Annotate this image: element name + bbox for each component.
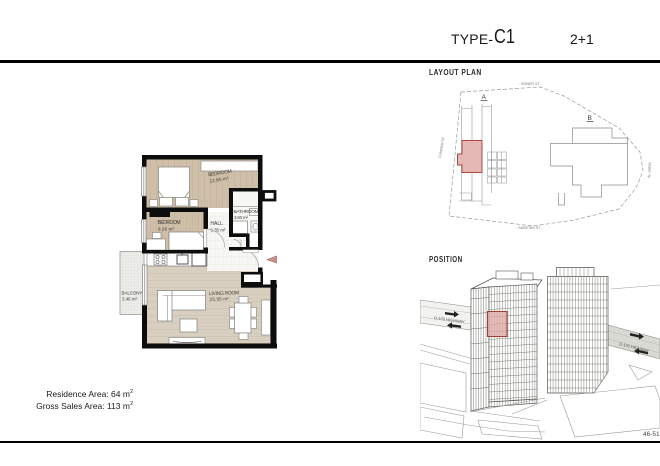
svg-text:FUNDEM ST: FUNDEM ST [438,136,446,158]
svg-text:HALL: HALL [210,221,223,227]
svg-text:A: A [482,94,487,101]
svg-text:- SARETAS ST -: - SARETAS ST - [516,226,543,230]
svg-text:BEDROOM: BEDROOM [158,220,181,226]
svg-text:3.60 m²: 3.60 m² [234,215,249,220]
svg-text:9.26 m²: 9.26 m² [158,227,175,232]
svg-text:B: B [588,115,592,122]
svg-text:- BONER ST -: - BONER ST - [519,82,542,86]
svg-text:3.46 m²: 3.46 m² [122,297,138,302]
svg-text:AL SAFIR: AL SAFIR [647,162,652,179]
svg-text:BALCONY: BALCONY [122,291,143,296]
svg-text:25.95 m²: 25.95 m² [210,296,230,302]
